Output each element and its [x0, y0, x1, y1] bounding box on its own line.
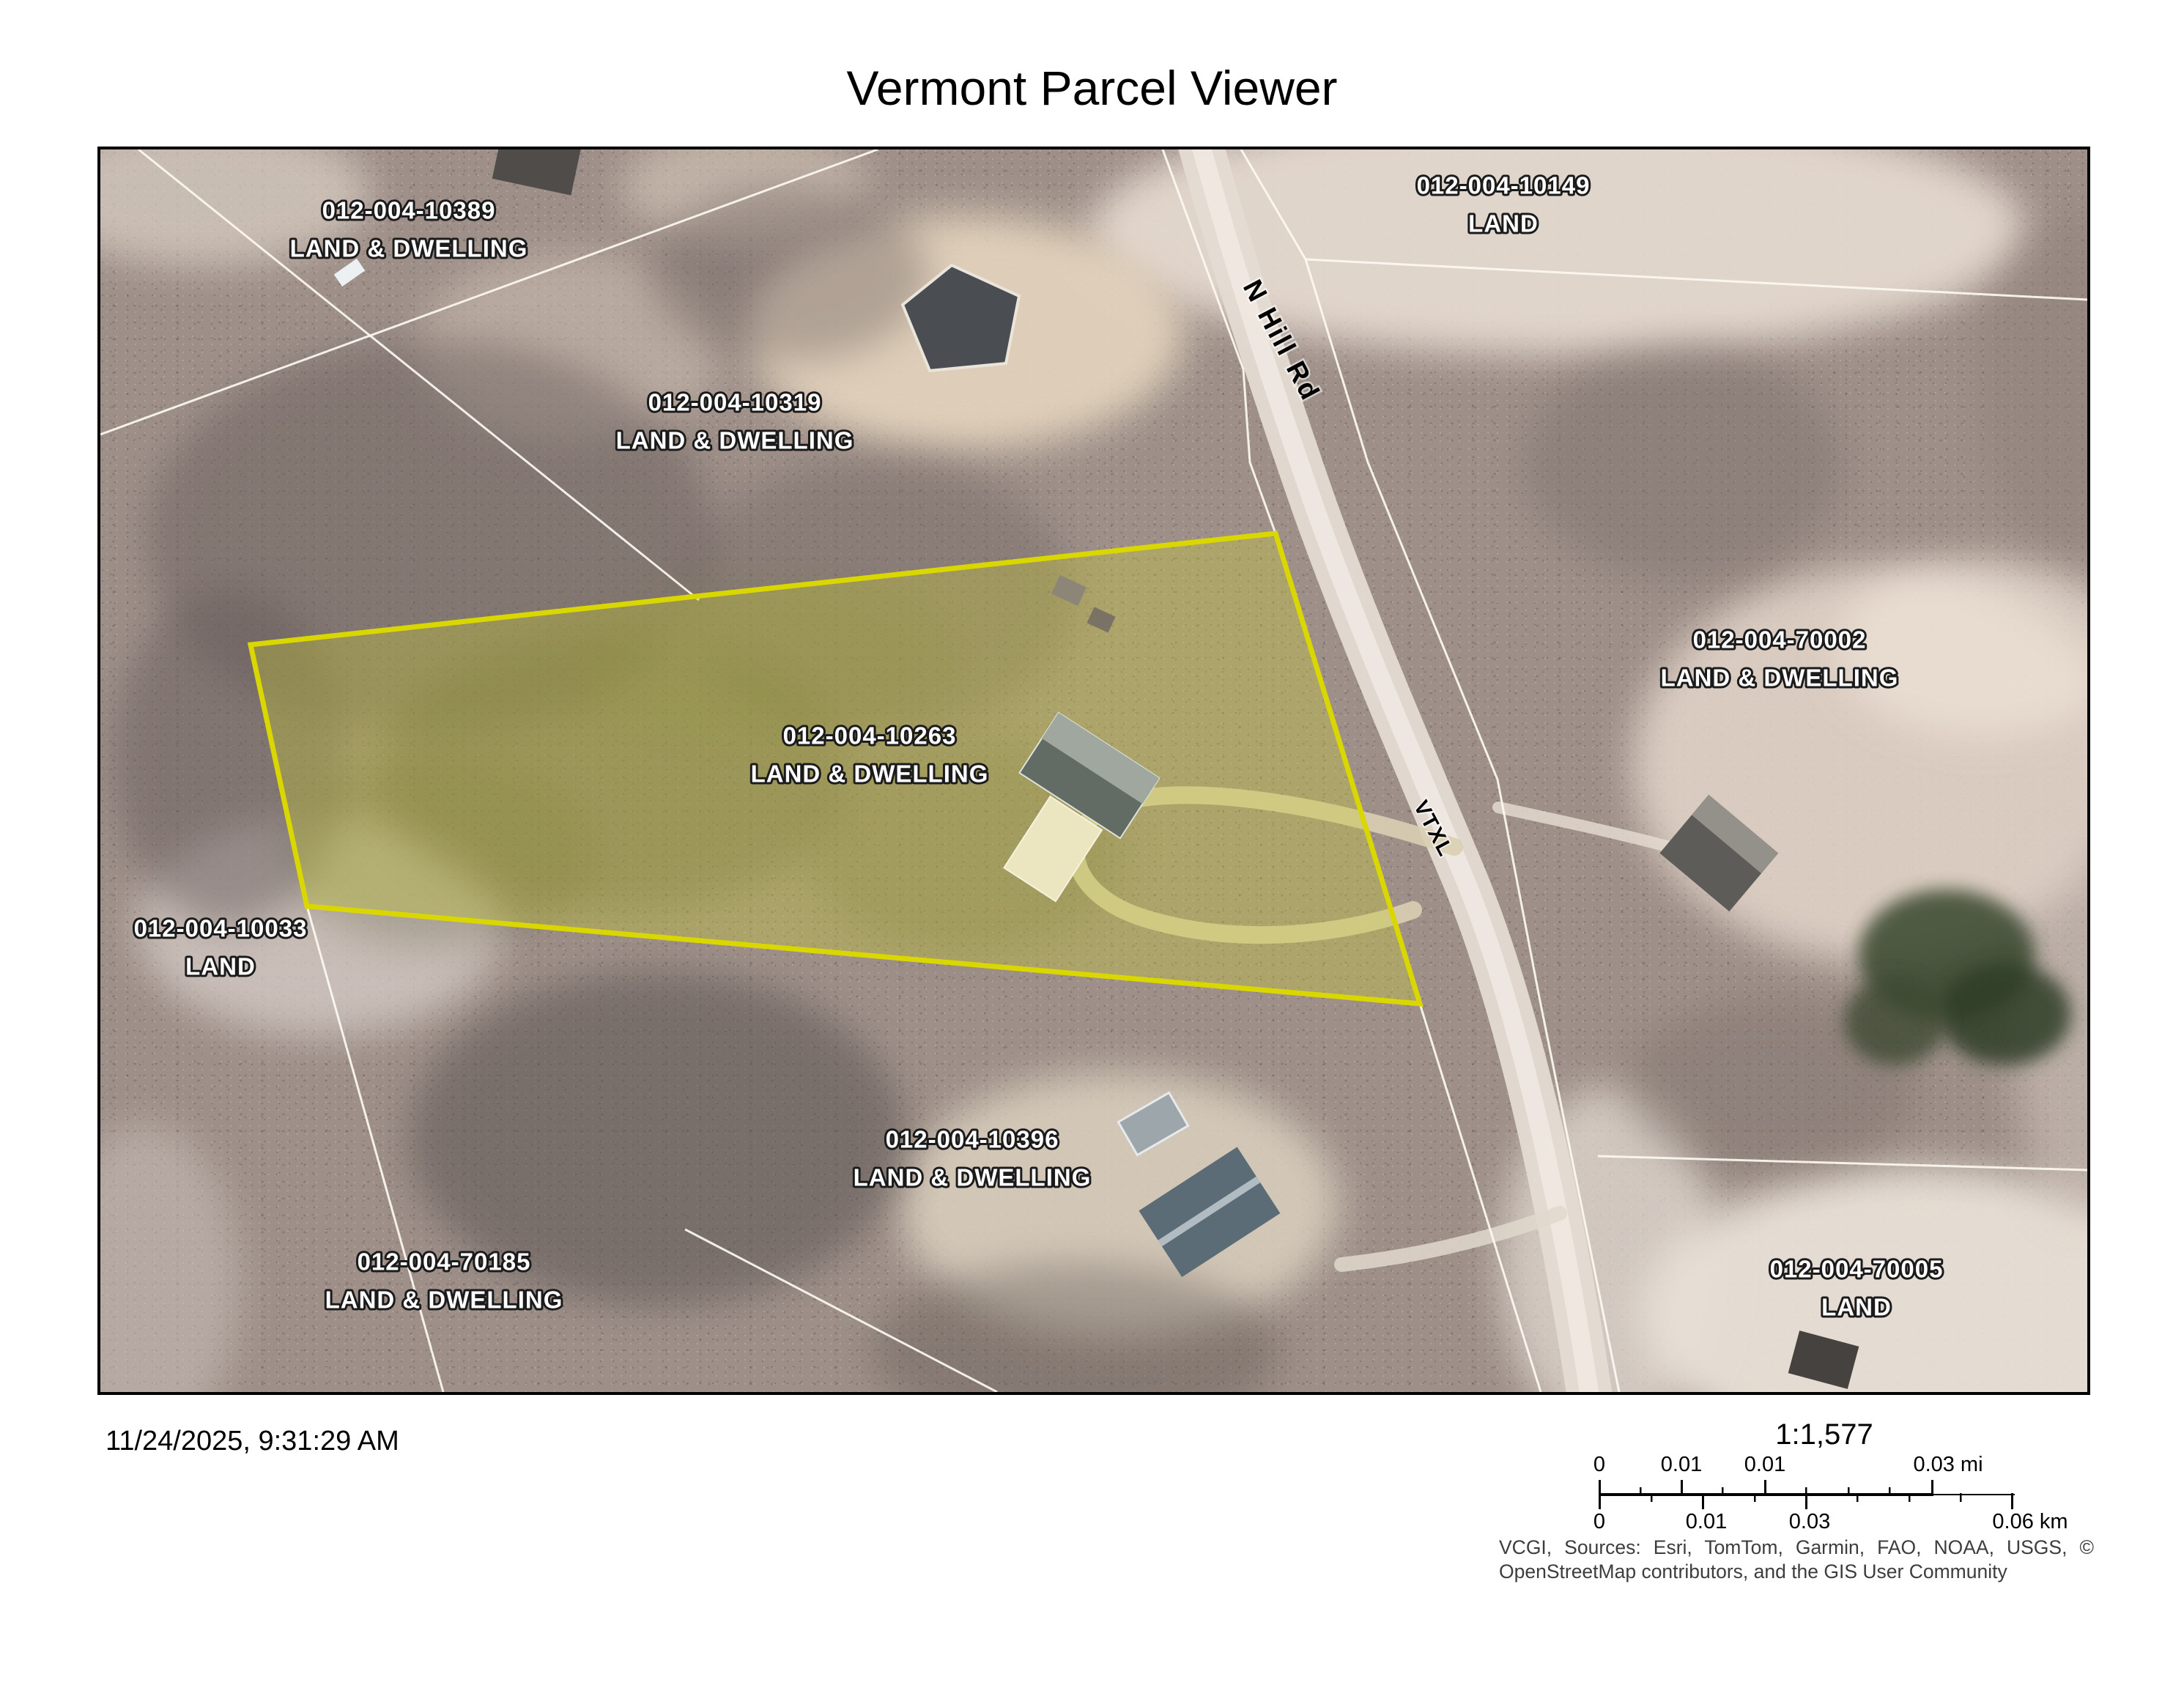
parcel-label-type: LAND: [1821, 1294, 1892, 1321]
parcel-label-type: LAND & DWELLING: [616, 427, 854, 454]
scale-ratio: 1:1,577: [1714, 1418, 1934, 1451]
scale-mi-2: 0.01: [1744, 1453, 1785, 1476]
parcel-label-id: 012-004-10396: [886, 1126, 1059, 1153]
parcel-label-id: 012-004-70005: [1770, 1256, 1944, 1283]
parcel-label-type: LAND: [185, 953, 256, 980]
parcel-label-type: LAND & DWELLING: [290, 235, 528, 262]
building-10389: [492, 149, 582, 196]
parcel-label-type: LAND & DWELLING: [751, 760, 989, 788]
scale-bar-mi-labels: 0 0.01 0.01 0.03 mi: [1593, 1453, 1983, 1476]
scale-bar: 0 0.01 0.01 0.03 mi 0 0.01 0.03 0.06 km: [1575, 1452, 2073, 1543]
map-overlay: 012-004-10389 LAND & DWELLING 012-004-10…: [100, 149, 2087, 1392]
parcel-label-id: 012-004-10389: [322, 197, 496, 224]
parcel-label-id: 012-004-10033: [134, 915, 308, 942]
scale-km-2: 0.03: [1789, 1510, 1830, 1533]
scale-bar-rule: [1599, 1480, 2015, 1509]
attribution: VCGI, Sources: Esri, TomTom, Garmin, FAO…: [1499, 1536, 2094, 1584]
timestamp: 11/24/2025, 9:31:29 AM: [106, 1426, 399, 1457]
attribution-line-1: VCGI, Sources: Esri, TomTom, Garmin, FAO…: [1499, 1536, 2094, 1560]
parcel-label-id: 012-004-10319: [648, 389, 822, 416]
parcel-label-id: 012-004-10263: [783, 722, 957, 749]
vehicle: [334, 259, 366, 286]
parcel-label-type: LAND: [1468, 210, 1539, 237]
scale-mi-0: 0: [1593, 1453, 1605, 1476]
scale-km-1: 0.01: [1686, 1510, 1727, 1533]
scale-km-3: 0.06 km: [1992, 1510, 2068, 1533]
parcel-label-type: LAND & DWELLING: [1661, 665, 1899, 692]
map-frame: 012-004-10389 LAND & DWELLING 012-004-10…: [97, 147, 2090, 1395]
scale-mi-3: 0.03 mi: [1913, 1453, 1983, 1476]
parcel-label-id: 012-004-70185: [358, 1248, 531, 1276]
scale-bar-km-labels: 0 0.01 0.03 0.06 km: [1593, 1510, 2068, 1533]
parcel-label-type: LAND & DWELLING: [325, 1287, 563, 1314]
scale-km-0: 0: [1593, 1510, 1605, 1533]
parcel-label-type: LAND & DWELLING: [854, 1164, 1092, 1191]
scale-mi-1: 0.01: [1661, 1453, 1702, 1476]
parcel-label-id: 012-004-70002: [1693, 626, 1867, 654]
parcel-label-id: 012-004-10149: [1417, 172, 1591, 199]
page-title: Vermont Parcel Viewer: [0, 60, 2184, 116]
attribution-line-2: OpenStreetMap contributors, and the GIS …: [1499, 1560, 2094, 1584]
